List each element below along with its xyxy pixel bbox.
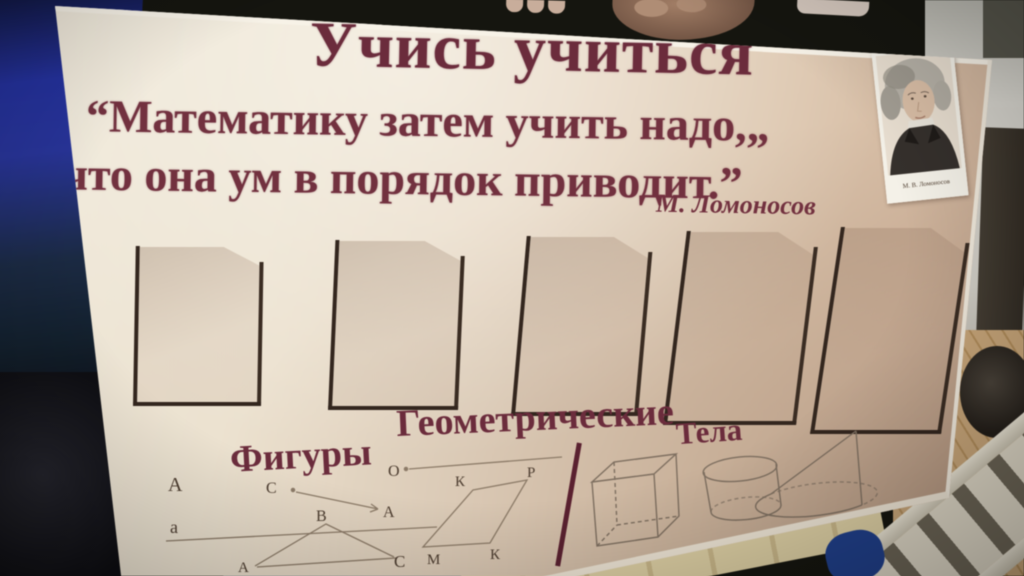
- label-line-a: а: [170, 517, 178, 537]
- ray-c-origin-dot: [291, 488, 294, 491]
- rectangular-prism-icon: [592, 454, 679, 546]
- label-tri-a: А: [238, 560, 249, 576]
- wall-shadow: [983, 0, 1024, 58]
- label-point-a: А: [168, 474, 183, 496]
- plane-figures: [166, 457, 562, 567]
- ray-o-origin-dot: [404, 467, 407, 470]
- label-para-p: Р: [527, 465, 535, 481]
- label-ray-o: О: [388, 463, 400, 480]
- poster-board: Учись учиться “Математику затем учить на…: [0, 0, 1024, 576]
- hand-fist-right: [611, 0, 755, 42]
- hand-fingers-left: [506, 0, 572, 15]
- label-para-m: М: [427, 552, 440, 568]
- label-para-k1: К: [455, 474, 466, 490]
- label-ray-a: А: [383, 504, 395, 521]
- figure-labels: А а С А О В А С К Р М К: [168, 463, 535, 576]
- photo-of-classroom-poster: Учись учиться “Математику затем учить на…: [0, 0, 1024, 576]
- label-tri-c: С: [394, 552, 405, 571]
- ray-o: [409, 457, 562, 469]
- ray-ca: [296, 492, 378, 512]
- parallelogram-krmk: [423, 480, 527, 547]
- geometry-drawings: А а С А О В А С К Р М К: [0, 0, 1024, 576]
- label-para-k2: К: [490, 547, 501, 563]
- scene: Учись учиться “Математику затем учить на…: [0, 0, 1024, 576]
- label-tri-b: В: [316, 508, 327, 525]
- cone-icon: [756, 431, 878, 517]
- hand-patch: [797, 0, 870, 17]
- label-ray-c: С: [266, 480, 277, 497]
- cylinder-icon: [702, 453, 781, 520]
